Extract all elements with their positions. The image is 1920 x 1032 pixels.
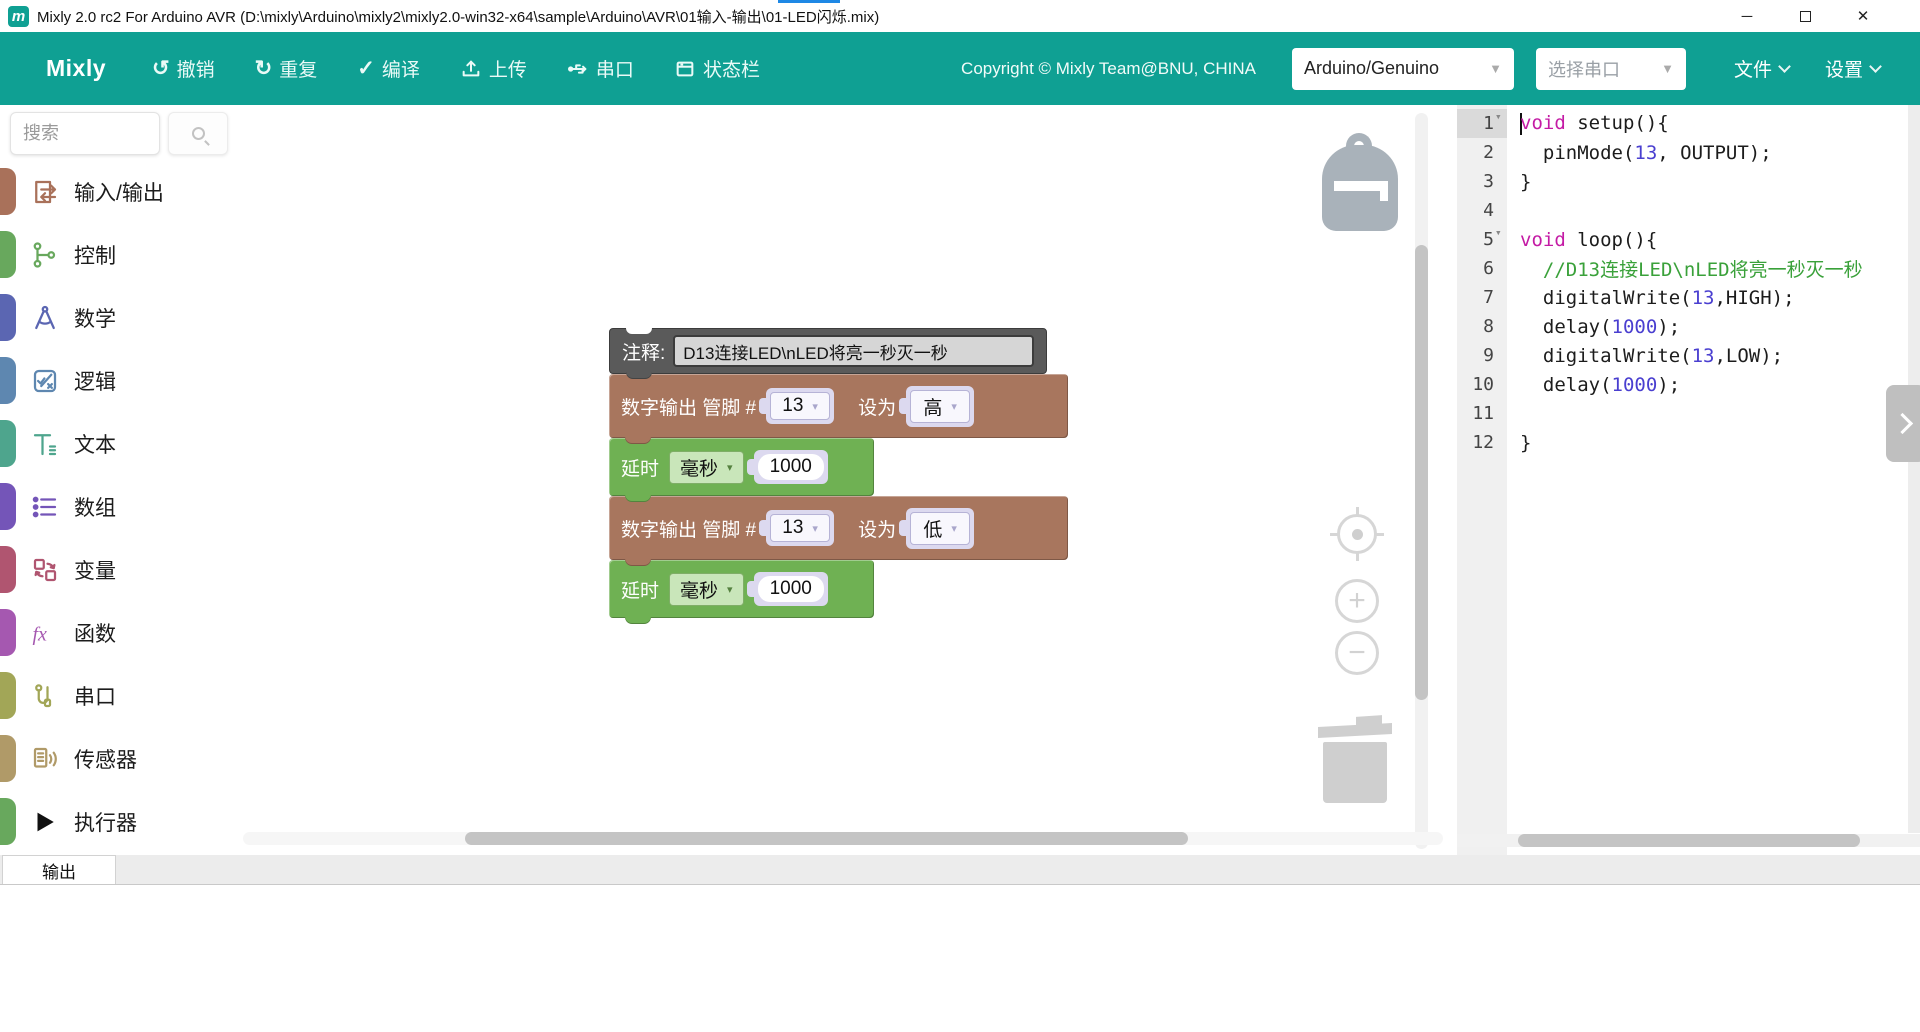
level-socket: 高 ▾ (906, 386, 974, 427)
chevron-down-icon: ▼ (1489, 61, 1502, 76)
chevron-down-icon: ▾ (812, 522, 818, 535)
category-color-pill (0, 483, 16, 530)
mixly-app-window: { "window": { "title": "Mixly 2.0 rc2 Fo… (0, 0, 1920, 1032)
maximize-button[interactable] (1776, 0, 1834, 32)
category-color-pill (0, 420, 16, 467)
close-button[interactable]: ✕ (1834, 0, 1892, 32)
block-stack: 注释: D13连接LED\nLED将亮一秒灭一秒 数字输出 管脚 # 13 ▾ … (609, 328, 1068, 618)
category-label: 逻辑 (74, 366, 116, 396)
upload-label: 上传 (489, 55, 527, 82)
code-line: 5▾void loop(){ (1457, 225, 1920, 254)
chevron-right-icon (1892, 413, 1913, 434)
zoom-in-icon[interactable]: + (1335, 579, 1379, 623)
sidebar-item-sensor[interactable]: 传感器 (0, 727, 233, 790)
line-number: 3 (1457, 167, 1507, 196)
compile-button[interactable]: ✓ 编译 (357, 55, 420, 82)
line-number: 8 (1457, 312, 1507, 341)
tick (1356, 507, 1359, 515)
search-button[interactable] (168, 112, 228, 155)
category-color-pill (0, 609, 16, 656)
top-accent-bar (778, 0, 840, 3)
tick (1356, 553, 1359, 561)
digital-write-prefix: 数字输出 管脚 # (621, 393, 756, 420)
text-icon (30, 429, 60, 459)
compile-label: 编译 (382, 55, 420, 82)
serial-icon (567, 58, 589, 80)
fold-arrow-icon[interactable]: ▾ (1495, 110, 1502, 123)
sidebar-item-serial[interactable]: 串口 (0, 664, 233, 727)
sidebar-item-input-output[interactable]: 输入/输出 (0, 160, 233, 223)
maximize-icon (1800, 11, 1811, 22)
code-lines: 1▾void setup(){2 pinMode(13, OUTPUT);3}4… (1457, 109, 1920, 457)
code-vertical-scrollbar-track (1908, 105, 1920, 833)
copyright-text: Copyright © Mixly Team@BNU, CHINA (961, 59, 1256, 79)
set-label: 设为 (858, 393, 896, 420)
code-line: 9 digitalWrite(13,LOW); (1457, 341, 1920, 370)
code-line: 12} (1457, 428, 1920, 457)
plus-glyph: + (1348, 586, 1366, 616)
search-icon (192, 127, 205, 140)
zoom-reset-dot (1352, 529, 1363, 540)
block-tab (625, 559, 651, 566)
search-row (10, 112, 228, 155)
code-line: 7 digitalWrite(13,HIGH); (1457, 283, 1920, 312)
category-label: 输入/输出 (74, 177, 164, 207)
chevron-down-icon: ▾ (951, 522, 957, 535)
chevron-down-icon (1778, 60, 1791, 73)
zoom-out-icon[interactable]: − (1335, 631, 1379, 675)
canvas-vertical-scrollbar[interactable] (1415, 245, 1428, 700)
category-color-pill (0, 231, 16, 278)
canvas-horizontal-scrollbar[interactable] (465, 832, 1188, 845)
code-text: pinMode(13, OUTPUT); (1507, 142, 1772, 164)
line-number: 4 (1457, 196, 1507, 225)
block-tab (625, 495, 651, 502)
settings-menu-label: 设置 (1825, 55, 1863, 82)
sidebar-item-text[interactable]: 文本 (0, 412, 233, 475)
category-color-pill (0, 735, 16, 782)
level-socket: 低 ▾ (906, 508, 974, 549)
window-controls: ─ ✕ (1718, 0, 1892, 32)
code-text: void setup(){ (1507, 112, 1669, 135)
code-line: 4 (1457, 196, 1920, 225)
line-number: 7 (1457, 283, 1507, 312)
line-number: 2 (1457, 138, 1507, 167)
file-menu[interactable]: 文件 (1734, 55, 1789, 82)
upload-icon (460, 58, 482, 80)
backpack-icon[interactable] (1322, 133, 1398, 233)
io-icon (30, 177, 60, 207)
delay-unit-dropdown[interactable]: 毫秒 ▾ (669, 573, 744, 606)
trash-can-body (1323, 742, 1387, 803)
category-label: 串口 (74, 681, 116, 711)
delay-label: 延时 (621, 576, 659, 603)
code-line: 11 (1457, 399, 1920, 428)
block-tab (625, 437, 651, 444)
compile-icon: ✓ (357, 56, 375, 81)
board-select-value: Arduino/Genuino (1304, 58, 1439, 79)
delay-block-1[interactable]: 延时 毫秒 ▾ 1000 (609, 438, 874, 496)
code-line: 2 pinMode(13, OUTPUT); (1457, 138, 1920, 167)
array-icon (30, 492, 60, 522)
category-label: 数学 (74, 303, 116, 333)
category-list: 输入/输出 控制 数学 逻辑 文本 (0, 160, 233, 853)
chevron-down-icon: ▾ (812, 400, 818, 413)
code-line: 10 delay(1000); (1457, 370, 1920, 399)
function-icon: fx (30, 618, 60, 648)
line-number: 10 (1457, 370, 1507, 399)
code-horizontal-scrollbar[interactable] (1518, 834, 1860, 847)
chevron-down-icon (1869, 60, 1882, 73)
main-toolbar: Mixly ↺ 撤销 ↻ 重复 ✓ 编译 上传 串口 (0, 32, 1920, 105)
serial-label: 串口 (596, 55, 634, 82)
category-color-pill (0, 294, 16, 341)
logic-icon (30, 366, 60, 396)
comment-text-field[interactable]: D13连接LED\nLED将亮一秒灭一秒 (673, 335, 1034, 367)
block-notch (626, 328, 652, 334)
digital-write-block-1[interactable]: 数字输出 管脚 # 13 ▾ 设为 高 ▾ (609, 374, 1068, 438)
sidebar-item-actuator[interactable]: 执行器 (0, 790, 233, 853)
redo-icon: ↻ (255, 56, 273, 81)
category-label: 函数 (74, 618, 116, 648)
delay-value-socket: 1000 (754, 450, 828, 484)
comment-block-label: 注释: (622, 338, 665, 365)
delay-label: 延时 (621, 454, 659, 481)
code-panel[interactable]: 1▾void setup(){2 pinMode(13, OUTPUT);3}4… (1457, 105, 1920, 855)
code-text: digitalWrite(13,HIGH); (1507, 287, 1795, 309)
svg-text:fx: fx (33, 623, 48, 645)
sidebar-item-control[interactable]: 控制 (0, 223, 233, 286)
title-bar: m Mixly 2.0 rc2 For Arduino AVR (D:\mixl… (0, 0, 1920, 32)
category-color-pill (0, 672, 16, 719)
trash-lid (1318, 723, 1392, 738)
code-line: 8 delay(1000); (1457, 312, 1920, 341)
chevron-down-icon: ▾ (951, 400, 957, 413)
code-line: 1▾void setup(){ (1457, 109, 1920, 138)
code-text: digitalWrite(13,LOW); (1507, 345, 1783, 367)
block-tab (626, 372, 652, 379)
statusbar-label: 状态栏 (703, 55, 760, 82)
line-number: 12 (1457, 428, 1507, 457)
trash-icon[interactable] (1318, 713, 1392, 803)
pin-value: 13 (782, 395, 803, 417)
minimize-button[interactable]: ─ (1718, 0, 1776, 32)
code-text: delay(1000); (1507, 374, 1680, 396)
category-label: 变量 (74, 555, 116, 585)
undo-label: 撤销 (177, 55, 215, 82)
code-line: 6 //D13连接LED\nLED将亮一秒灭一秒 (1457, 254, 1920, 283)
delay-block-2[interactable]: 延时 毫秒 ▾ 1000 (609, 560, 874, 618)
file-menu-label: 文件 (1734, 55, 1772, 82)
tick (1330, 533, 1338, 536)
line-number: 9 (1457, 341, 1507, 370)
sidebar-item-function[interactable]: fx 函数 (0, 601, 233, 664)
tick (1376, 533, 1384, 536)
sidebar-item-variable[interactable]: 变量 (0, 538, 233, 601)
delay-value-field[interactable]: 1000 (758, 576, 824, 602)
code-text: } (1507, 432, 1531, 454)
category-label: 执行器 (74, 807, 137, 837)
pin-socket: 13 ▾ (766, 510, 834, 546)
bottom-tab-strip (0, 855, 1920, 884)
undo-button[interactable]: ↺ 撤销 (152, 55, 215, 82)
fold-arrow-icon[interactable]: ▾ (1495, 226, 1502, 239)
chevron-down-icon: ▾ (727, 583, 733, 596)
sidebar-item-math[interactable]: 数学 (0, 286, 233, 349)
line-number: 6 (1457, 254, 1507, 283)
backpack-pocket (1334, 181, 1380, 191)
comment-block[interactable]: 注释: D13连接LED\nLED将亮一秒灭一秒 (609, 328, 1047, 374)
output-panel (0, 884, 1920, 1032)
chevron-down-icon: ▾ (727, 461, 733, 474)
pin-socket: 13 ▾ (766, 388, 834, 424)
output-tab[interactable]: 输出 (2, 855, 116, 885)
pin-dropdown[interactable]: 13 ▾ (770, 514, 830, 542)
variable-icon (30, 555, 60, 585)
settings-menu[interactable]: 设置 (1825, 55, 1880, 82)
serial-monitor-button[interactable]: 串口 (567, 55, 634, 82)
window-title: Mixly 2.0 rc2 For Arduino AVR (D:\mixly\… (37, 6, 879, 27)
delay-value-socket: 1000 (754, 572, 828, 606)
category-label: 控制 (74, 240, 116, 270)
zoom-reset-icon[interactable] (1337, 514, 1377, 554)
code-line: 3} (1457, 167, 1920, 196)
redo-label: 重复 (279, 55, 317, 82)
block-tab (625, 617, 651, 624)
chevron-down-icon: ▼ (1661, 61, 1674, 76)
actuator-icon (30, 807, 60, 837)
level-value: 低 (923, 515, 942, 542)
port-select[interactable]: 选择串口 ▼ (1536, 48, 1686, 90)
statusbar-icon (674, 58, 696, 80)
board-select[interactable]: Arduino/Genuino ▼ (1292, 48, 1514, 90)
app-logo-icon: m (8, 6, 29, 27)
collapse-code-panel-button[interactable] (1886, 385, 1920, 462)
undo-icon: ↺ (152, 56, 170, 81)
sidebar-item-array[interactable]: 数组 (0, 475, 233, 538)
search-input[interactable] (10, 112, 160, 155)
delay-value-field[interactable]: 1000 (758, 454, 824, 480)
sidebar-item-logic[interactable]: 逻辑 (0, 349, 233, 412)
minus-glyph: − (1348, 638, 1366, 668)
digital-write-block-2[interactable]: 数字输出 管脚 # 13 ▾ 设为 低 ▾ (609, 496, 1068, 560)
code-text: //D13连接LED\nLED将亮一秒灭一秒 (1507, 255, 1863, 282)
code-text: void loop(){ (1507, 229, 1657, 251)
line-number: 11 (1457, 399, 1507, 428)
upload-button[interactable]: 上传 (460, 55, 527, 82)
port-select-value: 选择串口 (1548, 56, 1620, 82)
category-color-pill (0, 546, 16, 593)
pin-dropdown[interactable]: 13 ▾ (770, 392, 830, 420)
math-icon (30, 303, 60, 333)
blockly-workspace[interactable]: 注释: D13连接LED\nLED将亮一秒灭一秒 数字输出 管脚 # 13 ▾ … (233, 105, 1455, 855)
brand-logo: Mixly (46, 55, 106, 82)
category-label: 数组 (74, 492, 116, 522)
category-label: 传感器 (74, 744, 137, 774)
control-icon (30, 240, 60, 270)
level-value: 高 (923, 393, 942, 420)
level-dropdown[interactable]: 高 ▾ (910, 390, 970, 423)
digital-write-prefix: 数字输出 管脚 # (621, 515, 756, 542)
sensor-icon (30, 744, 60, 774)
code-text: } (1507, 171, 1531, 193)
category-color-pill (0, 798, 16, 845)
delay-unit-value: 毫秒 (680, 454, 718, 481)
serial-port-icon (30, 681, 60, 711)
category-label: 文本 (74, 429, 116, 459)
pin-value: 13 (782, 517, 803, 539)
category-color-pill (0, 168, 16, 215)
delay-unit-value: 毫秒 (680, 576, 718, 603)
redo-button[interactable]: ↻ 重复 (255, 55, 318, 82)
delay-unit-dropdown[interactable]: 毫秒 ▾ (669, 451, 744, 484)
category-color-pill (0, 357, 16, 404)
block-category-sidebar: 输入/输出 控制 数学 逻辑 文本 (0, 105, 233, 855)
statusbar-button[interactable]: 状态栏 (674, 55, 760, 82)
code-text: delay(1000); (1507, 316, 1680, 338)
level-dropdown[interactable]: 低 ▾ (910, 512, 970, 545)
set-label: 设为 (858, 515, 896, 542)
